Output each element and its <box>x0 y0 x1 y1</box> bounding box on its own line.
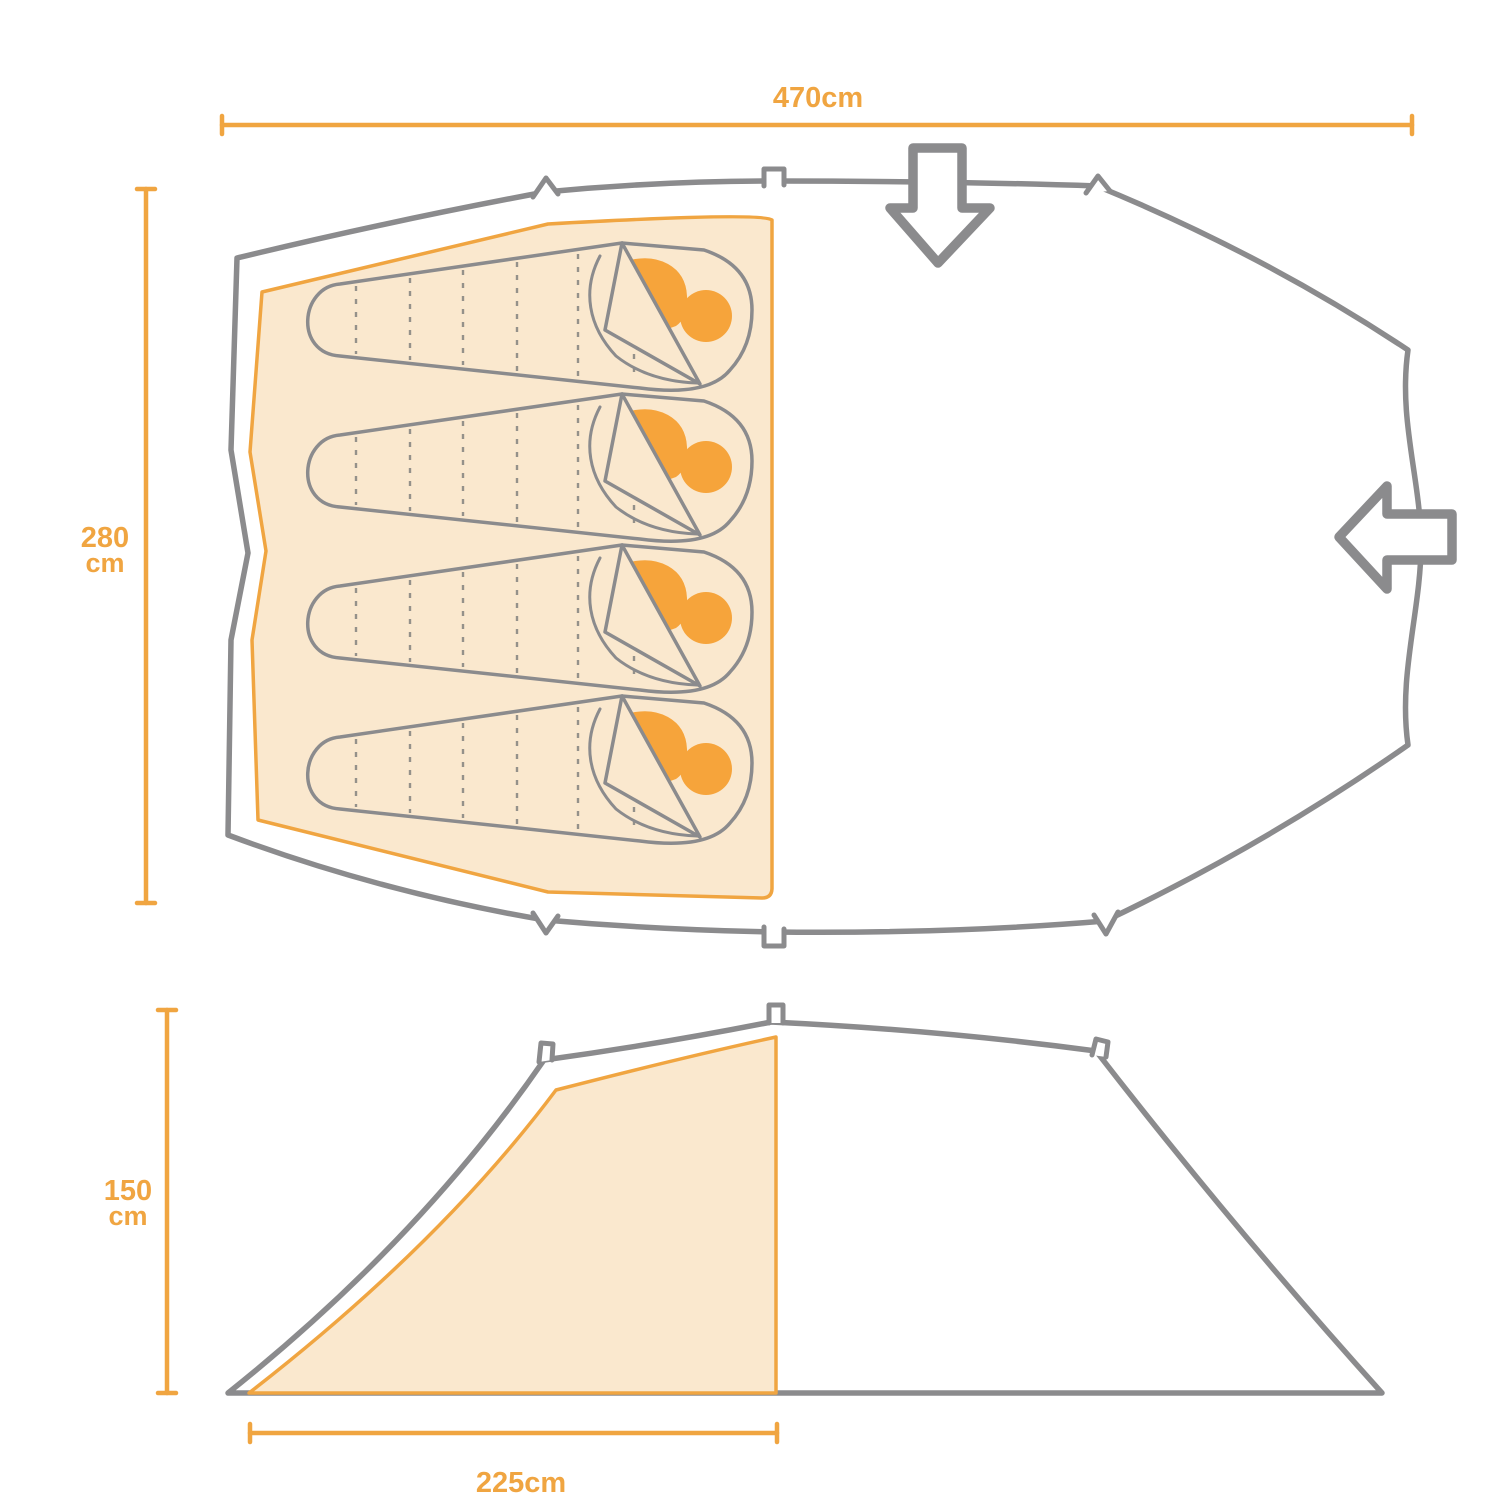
sleeping-area-side-view <box>249 1037 776 1393</box>
peg-loop-top-right <box>1086 176 1110 193</box>
sleeping-width-label: 225cm <box>476 1467 566 1499</box>
dimension-top-width: 470cm <box>222 82 1412 134</box>
peg-loop-bottom-right <box>1094 912 1118 934</box>
entrance-arrow-down-icon <box>890 148 990 263</box>
dimension-height: 150 cm <box>104 1010 176 1393</box>
pole-tab-bottom-center <box>764 927 784 946</box>
height-label-unit: cm <box>108 1201 147 1231</box>
peg-loop-bottom-left <box>533 913 558 933</box>
dimension-sleeping-width: 225cm <box>250 1424 777 1499</box>
diagram-canvas: 470cm 280 cm 150 cm 225cm <box>0 0 1500 1500</box>
pole-tip-right <box>1092 1039 1108 1057</box>
top-width-label: 470cm <box>773 82 863 114</box>
tent-top-view <box>228 148 1452 946</box>
pole-tip-left <box>539 1043 553 1062</box>
dimension-depth: 280 cm <box>81 189 155 903</box>
tent-dimensions-diagram: 470cm 280 cm 150 cm 225cm <box>0 0 1500 1500</box>
depth-label-unit: cm <box>85 548 124 578</box>
entrance-arrow-left-icon <box>1339 486 1452 589</box>
pole-tip-center <box>769 1005 783 1023</box>
pole-tab-top-center <box>764 169 784 186</box>
tent-side-view <box>228 1005 1382 1393</box>
peg-loop-top-left <box>533 178 558 197</box>
